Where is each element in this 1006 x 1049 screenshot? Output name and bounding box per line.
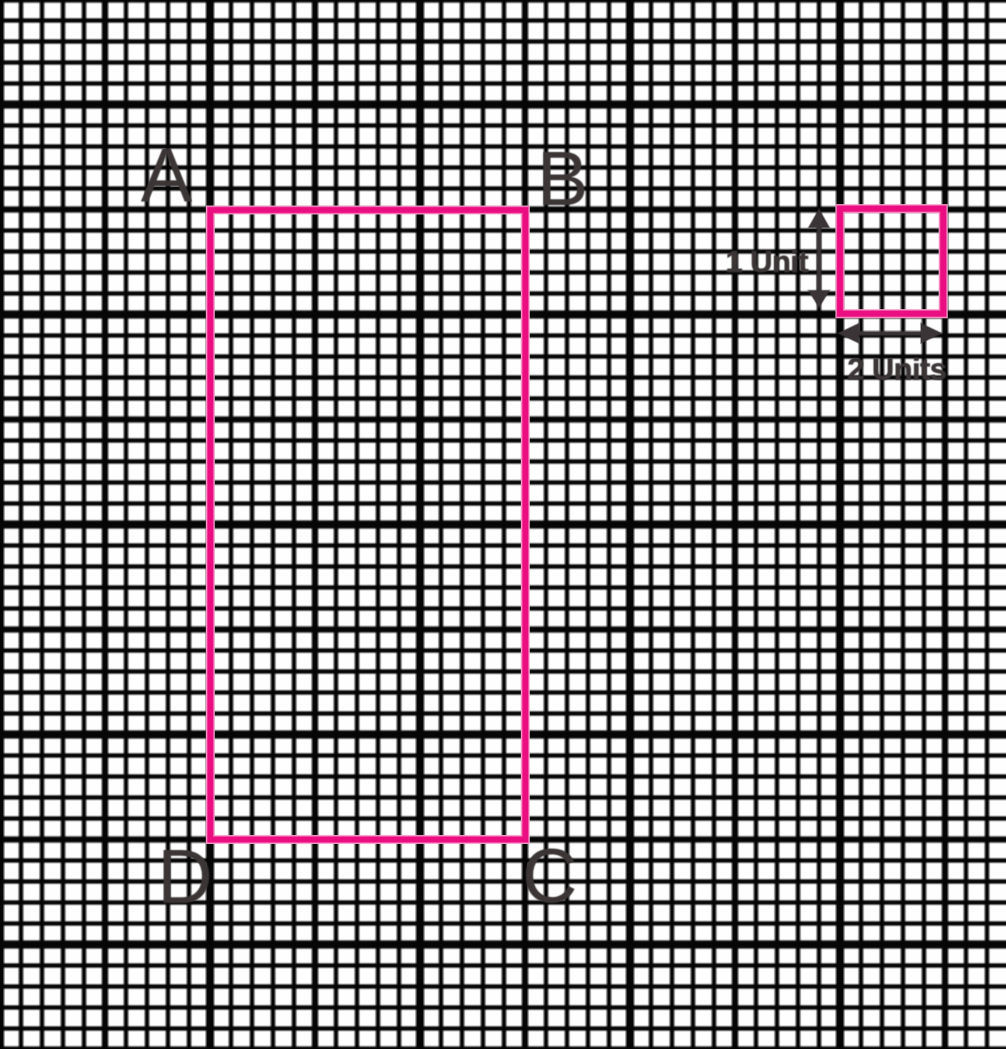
svg-text:1 Unit: 1 Unit	[726, 244, 809, 279]
svg-text:2 Units: 2 Units	[847, 352, 946, 387]
svg-text:A: A	[141, 133, 193, 219]
svg-text:B: B	[537, 136, 588, 222]
svg-text:D: D	[157, 834, 213, 920]
svg-text:C: C	[522, 834, 578, 920]
